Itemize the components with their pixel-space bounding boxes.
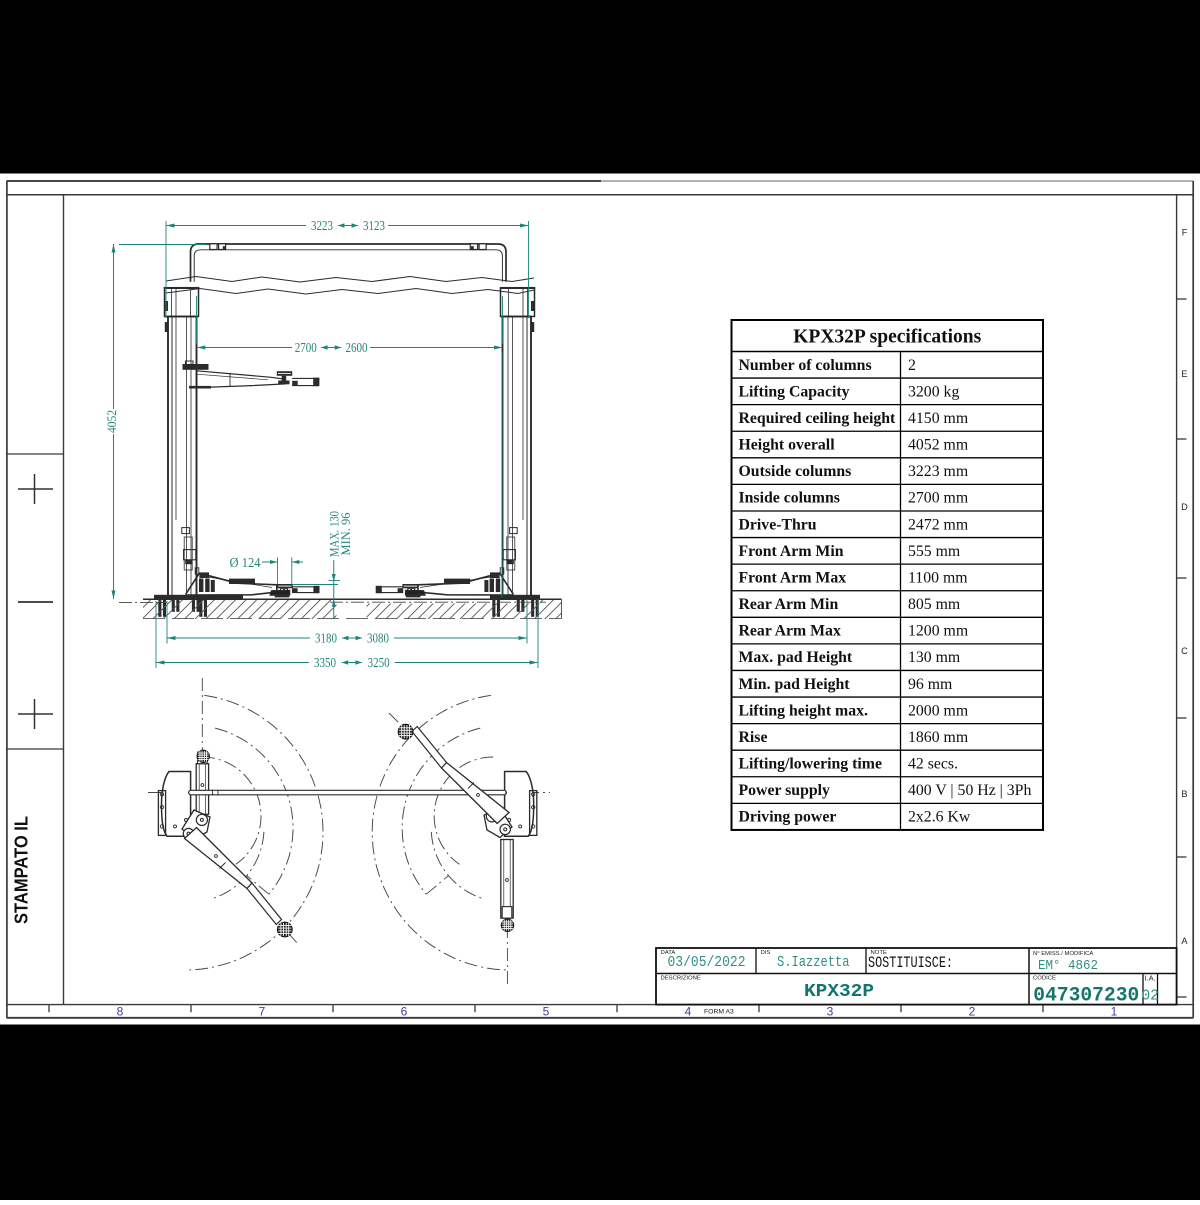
svg-text:03/05/2022: 03/05/2022: [668, 954, 746, 971]
svg-text:2: 2: [908, 357, 916, 374]
svg-text:B: B: [1181, 789, 1187, 799]
svg-text:E: E: [1181, 369, 1187, 379]
svg-text:2000 mm: 2000 mm: [908, 702, 969, 719]
svg-text:Lifting height max.: Lifting height max.: [739, 702, 869, 719]
svg-text:3250: 3250: [368, 655, 390, 670]
svg-text:STAMPATO IL: STAMPATO IL: [12, 816, 32, 924]
svg-text:2600: 2600: [346, 340, 368, 355]
svg-text:555 mm: 555 mm: [908, 543, 961, 560]
svg-text:Drive-Thru: Drive-Thru: [739, 516, 817, 533]
svg-text:805 mm: 805 mm: [908, 596, 961, 613]
svg-text:Driving power: Driving power: [739, 809, 837, 826]
svg-text:Outside columns: Outside columns: [739, 463, 852, 480]
svg-text:2x2.6 Kw: 2x2.6 Kw: [908, 809, 971, 826]
svg-text:S.Iazzetta: S.Iazzetta: [777, 954, 850, 971]
svg-text:Inside columns: Inside columns: [739, 490, 840, 507]
svg-text:Lifting/lowering time: Lifting/lowering time: [739, 756, 882, 773]
svg-text:4: 4: [685, 1004, 692, 1018]
svg-text:Height overall: Height overall: [739, 437, 836, 454]
svg-text:Rear Arm Max: Rear Arm Max: [739, 623, 841, 640]
svg-text:EM° 4862: EM° 4862: [1038, 958, 1098, 974]
svg-text:7: 7: [259, 1004, 266, 1018]
svg-text:Min. pad Height: Min. pad Height: [739, 676, 851, 693]
svg-text:4052: 4052: [104, 410, 119, 433]
svg-text:CODICE: CODICE: [1033, 976, 1056, 982]
svg-text:Power supply: Power supply: [739, 782, 831, 799]
svg-text:Lifting Capacity: Lifting Capacity: [739, 383, 850, 400]
svg-text:2700: 2700: [295, 340, 317, 355]
svg-text:Rise: Rise: [739, 729, 768, 746]
svg-text:1200 mm: 1200 mm: [908, 623, 969, 640]
svg-text:96 mm: 96 mm: [908, 676, 953, 693]
svg-text:Front Arm Min: Front Arm Min: [739, 543, 844, 560]
svg-text:3223 mm: 3223 mm: [908, 463, 969, 480]
svg-text:4150 mm: 4150 mm: [908, 410, 969, 427]
svg-text:A: A: [1181, 936, 1188, 946]
svg-text:3200 kg: 3200 kg: [908, 383, 959, 400]
svg-text:400 V | 50 Hz | 3Ph: 400 V | 50 Hz | 3Ph: [908, 782, 1031, 799]
svg-text:Max. pad Height: Max. pad Height: [739, 649, 853, 666]
svg-text:1100 mm: 1100 mm: [908, 569, 968, 586]
svg-text:3: 3: [827, 1004, 834, 1018]
svg-text:8: 8: [117, 1004, 124, 1018]
svg-text:02: 02: [1141, 988, 1158, 1004]
svg-text:3123: 3123: [363, 218, 385, 233]
svg-text:Rear Arm Min: Rear Arm Min: [739, 596, 839, 613]
svg-text:Ø 124: Ø 124: [230, 555, 261, 570]
svg-text:KPX32P specifications: KPX32P specifications: [793, 327, 981, 348]
svg-text:F: F: [1182, 228, 1188, 238]
svg-text:FORM A3: FORM A3: [704, 1009, 734, 1016]
svg-text:1860 mm: 1860 mm: [908, 729, 969, 746]
svg-text:KPX32P: KPX32P: [804, 982, 874, 1002]
svg-text:2472 mm: 2472 mm: [908, 516, 969, 533]
svg-text:DESCRIZIONE: DESCRIZIONE: [661, 976, 701, 982]
svg-text:4052 mm: 4052 mm: [908, 437, 969, 454]
svg-text:42 secs.: 42 secs.: [908, 756, 958, 773]
svg-text:3350: 3350: [314, 655, 336, 670]
svg-text:5: 5: [543, 1004, 550, 1018]
svg-text:130 mm: 130 mm: [908, 649, 961, 666]
svg-text:047307230: 047307230: [1033, 985, 1139, 1008]
svg-text:SOSTITUISCE:: SOSTITUISCE:: [868, 954, 953, 972]
svg-text:Required ceiling height: Required ceiling height: [739, 410, 897, 427]
svg-text:3080: 3080: [367, 630, 389, 645]
svg-text:3180: 3180: [315, 630, 337, 645]
svg-text:Front Arm Max: Front Arm Max: [739, 569, 847, 586]
svg-text:2: 2: [969, 1004, 976, 1018]
svg-text:C: C: [1181, 646, 1188, 656]
svg-text:Number of columns: Number of columns: [739, 357, 872, 374]
svg-text:DIS: DIS: [761, 950, 771, 956]
svg-text:MIN. 96: MIN. 96: [338, 512, 353, 555]
svg-text:3223: 3223: [311, 218, 333, 233]
svg-text:I.A.: I.A.: [1145, 974, 1156, 983]
svg-text:D: D: [1181, 502, 1188, 512]
svg-text:2700 mm: 2700 mm: [908, 490, 969, 507]
svg-text:6: 6: [401, 1004, 408, 1018]
svg-text:N° EMISS./ MODIFICA: N° EMISS./ MODIFICA: [1033, 951, 1093, 957]
